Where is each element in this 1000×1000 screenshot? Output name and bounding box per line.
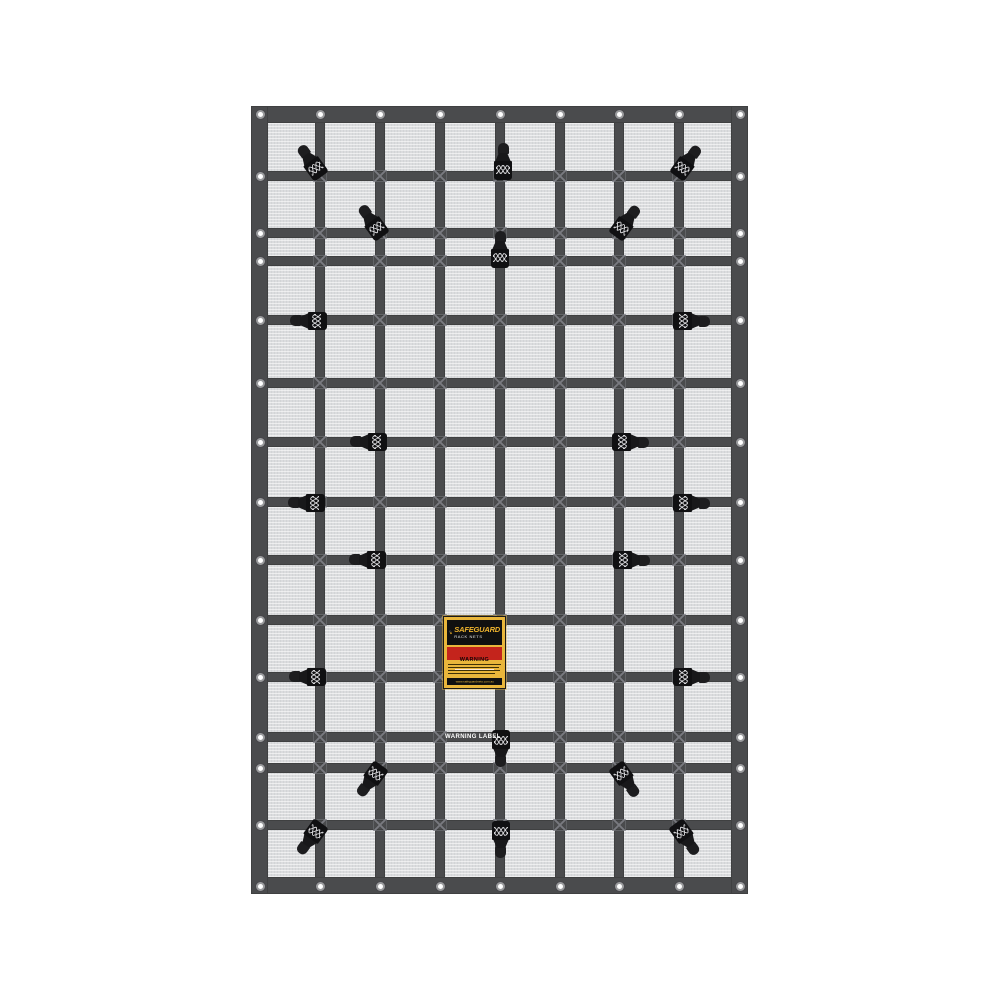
grommet <box>615 882 624 891</box>
cross-stitch <box>313 762 327 774</box>
cross-stitch <box>553 436 567 448</box>
grommet <box>256 438 265 447</box>
grommet <box>256 882 265 891</box>
cross-stitch <box>433 314 447 326</box>
cross-stitch <box>433 227 447 239</box>
cross-stitch <box>373 671 387 683</box>
buckle-cap <box>699 316 710 327</box>
grommet <box>675 110 684 119</box>
grommet <box>256 821 265 830</box>
rack-net <box>251 106 748 894</box>
buckle-cap <box>496 756 507 767</box>
fineprint-line <box>448 664 501 665</box>
cross-stitch <box>553 170 567 182</box>
grommet <box>256 733 265 742</box>
cross-stitch <box>373 377 387 389</box>
warning-band: WARNING <box>447 647 502 660</box>
cross-stitch <box>553 731 567 743</box>
grommet <box>736 764 745 773</box>
buckle-base <box>673 668 692 686</box>
cross-stitch <box>672 436 686 448</box>
grommet <box>256 498 265 507</box>
cross-stitch <box>612 614 626 626</box>
grommet <box>316 110 325 119</box>
cross-stitch <box>553 614 567 626</box>
cam-buckle <box>493 143 513 181</box>
safeguard-label: SAFEGUARD RACK NETS WARNING www.safeguar… <box>443 616 506 689</box>
cross-stitch <box>612 819 626 831</box>
cross-stitch <box>373 255 387 267</box>
cross-stitch <box>373 819 387 831</box>
buckle-cap <box>349 555 360 566</box>
cross-stitch <box>373 170 387 182</box>
buckle-base <box>673 312 692 330</box>
buckle-cap <box>288 498 299 509</box>
buckle-base <box>307 668 326 686</box>
buckle-base <box>368 433 387 451</box>
product-photo: SAFEGUARD RACK NETS WARNING www.safeguar… <box>0 0 1000 1000</box>
buckle-base <box>613 551 632 569</box>
cross-stitch <box>313 377 327 389</box>
grommet <box>376 110 385 119</box>
grommet <box>736 556 745 565</box>
grommet <box>256 229 265 238</box>
buckle-base <box>492 821 510 840</box>
cross-stitch <box>313 614 327 626</box>
cross-stitch <box>433 554 447 566</box>
buckle-base <box>612 433 631 451</box>
cam-buckle <box>350 432 388 452</box>
grommet <box>556 110 565 119</box>
cross-stitch <box>553 554 567 566</box>
grommet <box>256 764 265 773</box>
cross-stitch <box>493 554 507 566</box>
label-header: SAFEGUARD RACK NETS <box>447 620 502 645</box>
buckle-cap <box>639 555 650 566</box>
grommet <box>436 110 445 119</box>
grommet <box>736 498 745 507</box>
grommet <box>256 172 265 181</box>
buckle-cap <box>495 231 506 242</box>
grommet <box>256 110 265 119</box>
warning-band-title: WARNING <box>460 657 489 663</box>
grommet <box>556 882 565 891</box>
grommet <box>736 616 745 625</box>
cross-stitch <box>612 496 626 508</box>
grommet <box>256 556 265 565</box>
cam-buckle <box>290 311 328 331</box>
cross-stitch <box>612 377 626 389</box>
cam-buckle <box>491 820 511 858</box>
cross-stitch <box>672 377 686 389</box>
buckle-cap <box>290 316 301 327</box>
buckle-cap <box>638 437 649 448</box>
cross-stitch <box>313 227 327 239</box>
grommet <box>496 882 505 891</box>
brand-logo-icon <box>449 623 452 642</box>
grommet <box>736 379 745 388</box>
cross-stitch <box>433 255 447 267</box>
buckle-base <box>367 551 386 569</box>
buckle-base <box>491 249 509 268</box>
buckle-base <box>494 161 512 180</box>
cross-stitch <box>553 496 567 508</box>
cross-stitch <box>553 377 567 389</box>
cross-stitch <box>672 255 686 267</box>
cross-stitch <box>612 255 626 267</box>
cam-buckle <box>612 550 650 570</box>
website-bar: www.safeguardnets.com.au <box>447 678 502 685</box>
cross-stitch <box>553 819 567 831</box>
cross-stitch <box>433 762 447 774</box>
cross-stitch <box>373 731 387 743</box>
cross-stitch <box>612 671 626 683</box>
grommet <box>736 673 745 682</box>
cross-stitch <box>553 671 567 683</box>
cross-stitch <box>313 255 327 267</box>
cross-stitch <box>672 614 686 626</box>
buckle-base <box>308 312 327 330</box>
grommet <box>736 438 745 447</box>
grommet <box>736 110 745 119</box>
cam-buckle <box>672 311 710 331</box>
grommet <box>316 882 325 891</box>
cam-buckle <box>672 493 710 513</box>
cam-buckle <box>611 432 649 452</box>
cross-stitch <box>553 255 567 267</box>
strap-warning-label-text: WARNING LABEL <box>445 733 501 742</box>
cross-stitch <box>373 496 387 508</box>
grommet <box>256 379 265 388</box>
grommet <box>376 882 385 891</box>
cross-stitch <box>612 314 626 326</box>
grommet <box>736 229 745 238</box>
grommet <box>256 616 265 625</box>
grommet <box>736 316 745 325</box>
grommet <box>675 882 684 891</box>
cam-buckle <box>672 667 710 687</box>
cross-stitch <box>553 227 567 239</box>
grommet <box>496 110 505 119</box>
buckle-base <box>673 494 692 512</box>
label-fineprint-block <box>447 662 502 676</box>
cross-stitch <box>672 554 686 566</box>
cross-stitch <box>433 496 447 508</box>
grommet <box>436 882 445 891</box>
buckle-cap <box>498 143 509 154</box>
fineprint-line <box>448 670 500 671</box>
cross-stitch <box>373 314 387 326</box>
brand-subtitle: RACK NETS <box>454 635 500 639</box>
grommet <box>736 882 745 891</box>
brand-name: SAFEGUARD <box>454 626 500 634</box>
cross-stitch <box>672 762 686 774</box>
cross-stitch <box>433 170 447 182</box>
grommet <box>736 257 745 266</box>
cross-stitch <box>553 314 567 326</box>
grommet <box>736 733 745 742</box>
grommet <box>256 673 265 682</box>
grommet <box>736 172 745 181</box>
buckle-cap <box>699 672 710 683</box>
cross-stitch <box>672 227 686 239</box>
cross-stitch <box>493 377 507 389</box>
cross-stitch <box>373 614 387 626</box>
cross-stitch <box>612 170 626 182</box>
grommet <box>736 821 745 830</box>
cross-stitch <box>433 377 447 389</box>
cam-buckle <box>288 493 326 513</box>
cam-buckle <box>490 231 510 269</box>
cross-stitch <box>493 436 507 448</box>
cam-buckle <box>289 667 327 687</box>
grommet <box>256 316 265 325</box>
website-text: www.safeguardnets.com.au <box>455 680 493 683</box>
buckle-cap <box>289 672 300 683</box>
cross-stitch <box>433 819 447 831</box>
grommet <box>256 257 265 266</box>
grommet <box>615 110 624 119</box>
cam-buckle <box>349 550 387 570</box>
fineprint-line <box>448 667 499 668</box>
buckle-base <box>306 494 325 512</box>
cross-stitch <box>672 731 686 743</box>
cross-stitch <box>493 496 507 508</box>
cross-stitch <box>433 436 447 448</box>
cross-stitch <box>313 436 327 448</box>
buckle-cap <box>496 847 507 858</box>
fineprint-line <box>448 673 495 674</box>
cross-stitch <box>313 731 327 743</box>
cross-stitch <box>553 762 567 774</box>
cross-stitch <box>313 554 327 566</box>
buckle-cap <box>350 437 361 448</box>
buckle-cap <box>699 498 710 509</box>
cross-stitch <box>493 314 507 326</box>
cross-stitch <box>612 731 626 743</box>
